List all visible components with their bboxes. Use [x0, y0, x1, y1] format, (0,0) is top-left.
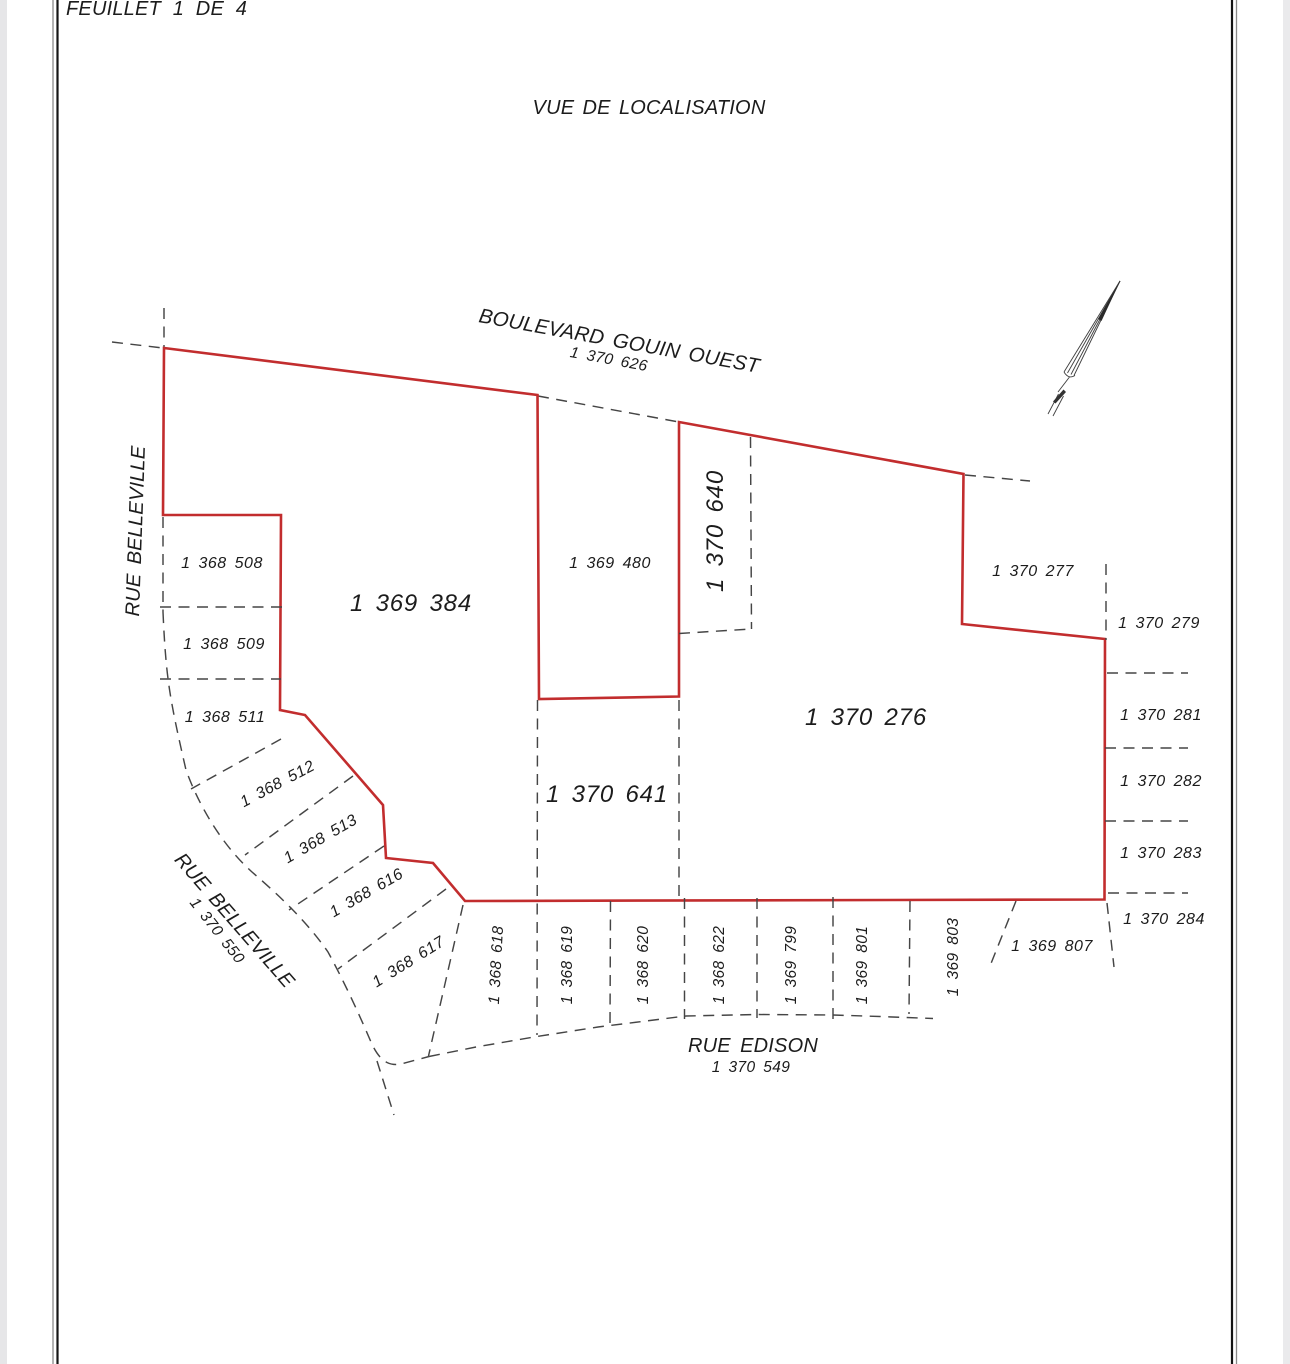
- svg-text:1 368 620: 1 368 620: [635, 926, 652, 1005]
- svg-text:FEUILLET 1 DE 4: FEUILLET 1 DE 4: [66, 0, 247, 20]
- svg-text:1 368 622: 1 368 622: [711, 926, 728, 1005]
- svg-text:1 370 276: 1 370 276: [805, 704, 927, 731]
- svg-text:1 368 508: 1 368 508: [181, 555, 263, 572]
- svg-text:1 369 807: 1 369 807: [1011, 938, 1093, 955]
- svg-text:1 368 511: 1 368 511: [185, 709, 266, 726]
- svg-text:1 369 384: 1 369 384: [350, 590, 472, 617]
- svg-text:1 368 619: 1 368 619: [559, 926, 576, 1005]
- svg-text:VUE DE LOCALISATION: VUE DE LOCALISATION: [533, 97, 766, 119]
- svg-text:1 370 281: 1 370 281: [1120, 707, 1202, 724]
- svg-text:1 368 509: 1 368 509: [183, 636, 265, 653]
- svg-text:1 370 277: 1 370 277: [992, 563, 1074, 580]
- svg-text:1 370 279: 1 370 279: [1118, 615, 1200, 632]
- svg-text:1 369 799: 1 369 799: [783, 926, 800, 1005]
- svg-text:1 370 282: 1 370 282: [1120, 773, 1202, 790]
- svg-text:1 369 480: 1 369 480: [569, 555, 651, 572]
- svg-text:1 370 641: 1 370 641: [546, 781, 668, 808]
- svg-text:1 369 801: 1 369 801: [854, 926, 871, 1005]
- svg-text:RUE EDISON: RUE EDISON: [688, 1035, 818, 1057]
- svg-text:1 370 283: 1 370 283: [1120, 845, 1202, 862]
- svg-text:1 370 640: 1 370 640: [702, 470, 729, 592]
- svg-text:1 370 549: 1 370 549: [712, 1059, 791, 1076]
- svg-text:1 370 284: 1 370 284: [1123, 911, 1205, 928]
- svg-text:1 369 803: 1 369 803: [945, 918, 962, 997]
